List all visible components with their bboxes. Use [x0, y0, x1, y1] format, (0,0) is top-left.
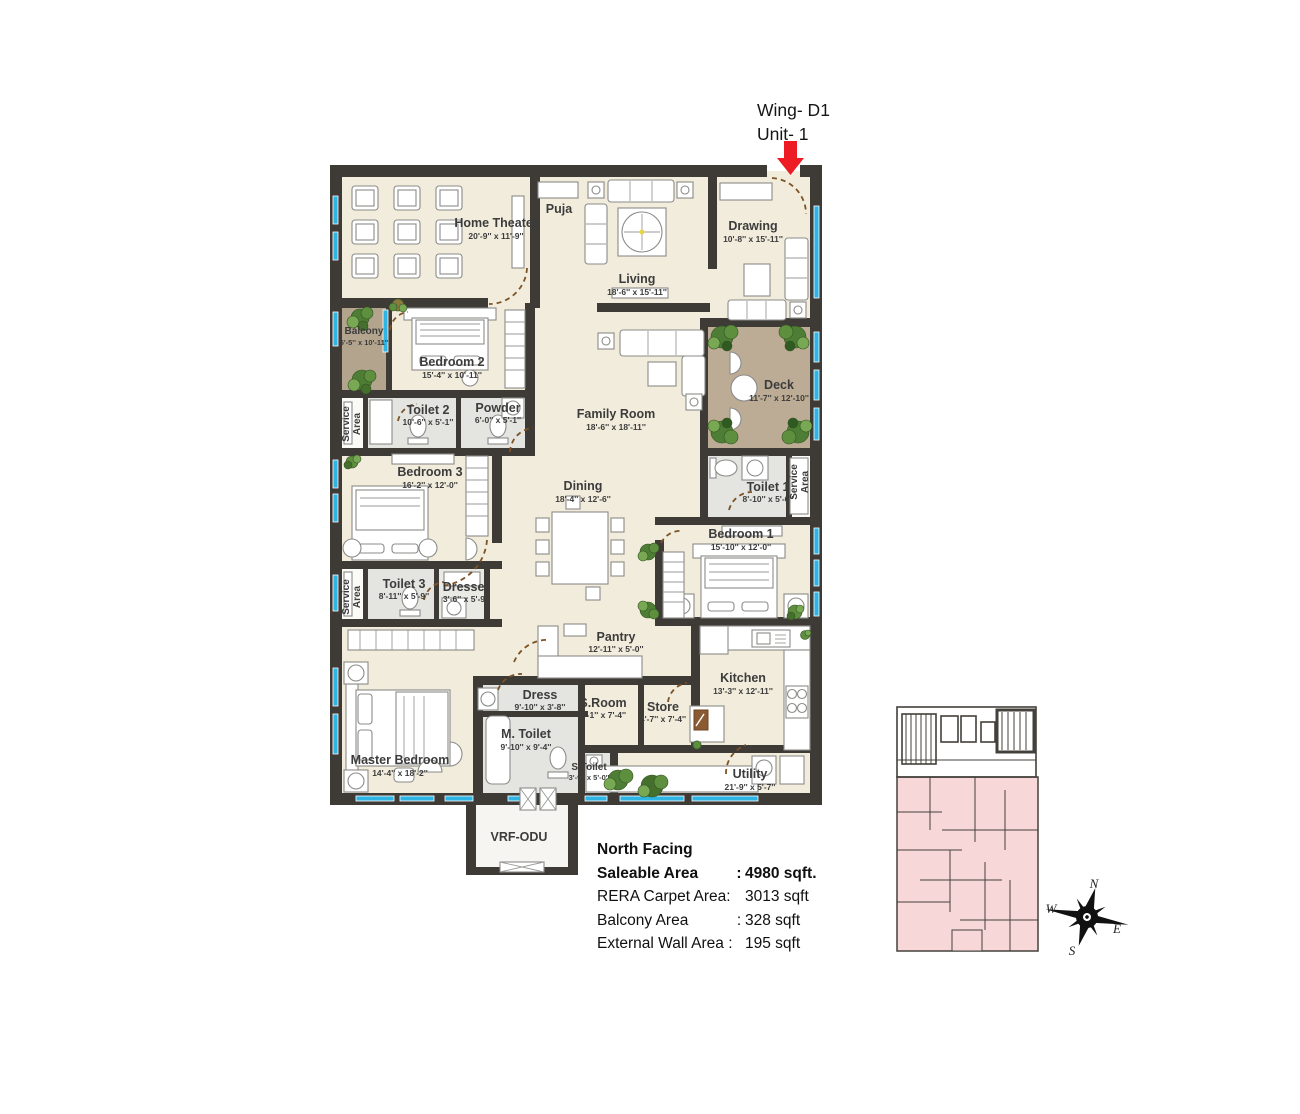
svg-text:4'-7'' x 7'-4'': 4'-7'' x 7'-4'' [640, 714, 686, 724]
svg-text:18'-4'' x 12'-6'': 18'-4'' x 12'-6'' [555, 494, 611, 504]
room-pantry: Pantry [597, 630, 636, 644]
compass-w: W [1046, 901, 1058, 916]
svg-text:15'-10'' x 12'-0'': 15'-10'' x 12'-0'' [711, 542, 771, 552]
room-dresser: Dresser [443, 580, 490, 594]
room-dress: Dress [523, 688, 558, 702]
area-info-block: North Facing Saleable Area:4980 sqft. RE… [597, 838, 817, 956]
svg-text:6'-0'' x 5'-1'': 6'-0'' x 5'-1'' [475, 415, 521, 425]
room-kitchen: Kitchen [720, 671, 766, 685]
room-deck: Deck [764, 378, 794, 392]
info-row-balcony: Balcony Area:328 sqft [597, 909, 817, 933]
room-powder: Powder [475, 401, 520, 415]
room-balcony: Balcony [345, 326, 384, 337]
svg-text:Service: Service [341, 579, 352, 615]
floor-plan-page: Wing- D1Unit- 1 [0, 0, 1300, 1114]
svg-text:3'-6'' x 5'-9'': 3'-6'' x 5'-9'' [443, 594, 489, 604]
svg-text:8'-10'' x 5'-6'': 8'-10'' x 5'-6'' [743, 494, 794, 504]
room-puja: Puja [546, 202, 573, 216]
room-toilet1: Toilet 1 [747, 480, 790, 494]
svg-text:5'-5'' x 10'-11'': 5'-5'' x 10'-11'' [340, 338, 389, 347]
svg-text:14'-4'' x 18'-2'': 14'-4'' x 18'-2'' [372, 768, 428, 778]
room-stoilet: S.Toilet [571, 762, 607, 773]
room-bedroom2: Bedroom 2 [419, 355, 484, 369]
room-bedroom3: Bedroom 3 [397, 465, 462, 479]
room-mtoilet: M. Toilet [501, 727, 552, 741]
key-plan-core [897, 707, 1036, 777]
svg-text:Service: Service [789, 464, 800, 500]
svg-text:7'-1'' x 7'-4'': 7'-1'' x 7'-4'' [580, 710, 626, 720]
room-store: Store [647, 700, 679, 714]
svg-text:10'-8'' x 15'-11'': 10'-8'' x 15'-11'' [723, 234, 783, 244]
svg-text:12'-11'' x 5'-0'': 12'-11'' x 5'-0'' [588, 644, 643, 654]
info-row-external: External Wall Area :195 sqft [597, 932, 817, 956]
facing-heading: North Facing [597, 838, 817, 862]
room-living: Living [619, 272, 656, 286]
room-toilet2: Toilet 2 [407, 403, 450, 417]
info-row-rera: RERA Carpet Area:3013 sqft [597, 885, 817, 909]
svg-text:10'-6'' x 5'-1'': 10'-6'' x 5'-1'' [403, 417, 454, 427]
room-vrf-odu: VRF-ODU [491, 830, 548, 844]
svg-text:21'-9'' x 5'-7'': 21'-9'' x 5'-7'' [725, 782, 776, 792]
svg-text:18'-6'' x 18'-11'': 18'-6'' x 18'-11'' [586, 422, 646, 432]
compass-n: N [1089, 876, 1100, 891]
room-master: Master Bedroom [351, 753, 450, 767]
svg-text:18'-6'' x 15'-11'': 18'-6'' x 15'-11'' [607, 287, 667, 297]
room-home-theater: Home Theater [454, 216, 537, 230]
svg-text:9'-10'' x 9'-4'': 9'-10'' x 9'-4'' [501, 742, 552, 752]
svg-text:8'-11'' x 5'-9'': 8'-11'' x 5'-9'' [379, 591, 429, 601]
svg-text:20'-9'' x 11'-9'': 20'-9'' x 11'-9'' [468, 231, 523, 241]
room-bedroom1: Bedroom 1 [708, 527, 773, 541]
compass-rose-icon: N W E S [1038, 876, 1135, 958]
room-drawing: Drawing [728, 219, 777, 233]
room-sroom: S.Room [579, 696, 626, 710]
svg-text:Area: Area [800, 470, 811, 493]
svg-text:Area: Area [352, 585, 363, 608]
room-utility: Utility [733, 767, 768, 781]
svg-text:15'-4'' x 10'-11'': 15'-4'' x 10'-11'' [422, 370, 482, 380]
info-row-saleable: Saleable Area:4980 sqft. [597, 862, 817, 886]
puja-shelf [538, 182, 578, 198]
svg-text:Service: Service [341, 406, 352, 442]
compass-s: S [1069, 943, 1076, 958]
svg-text:9'-10'' x 3'-8'': 9'-10'' x 3'-8'' [515, 702, 566, 712]
svg-text:16'-2'' x 12'-0'': 16'-2'' x 12'-0'' [402, 480, 458, 490]
svg-text:3'-9'' x 5'-0'': 3'-9'' x 5'-0'' [569, 773, 610, 782]
svg-text:Area: Area [352, 412, 363, 435]
room-dining: Dining [564, 479, 603, 493]
room-family: Family Room [577, 407, 656, 421]
key-plan [897, 707, 1038, 951]
svg-text:13'-3'' x 12'-11'': 13'-3'' x 12'-11'' [713, 686, 773, 696]
room-toilet3: Toilet 3 [383, 577, 426, 591]
compass-e: E [1112, 921, 1121, 936]
svg-text:11'-7'' x 12'-10'': 11'-7'' x 12'-10'' [749, 393, 809, 403]
entry-arrow-icon [777, 141, 804, 175]
key-plan-unit-area [897, 777, 1038, 951]
